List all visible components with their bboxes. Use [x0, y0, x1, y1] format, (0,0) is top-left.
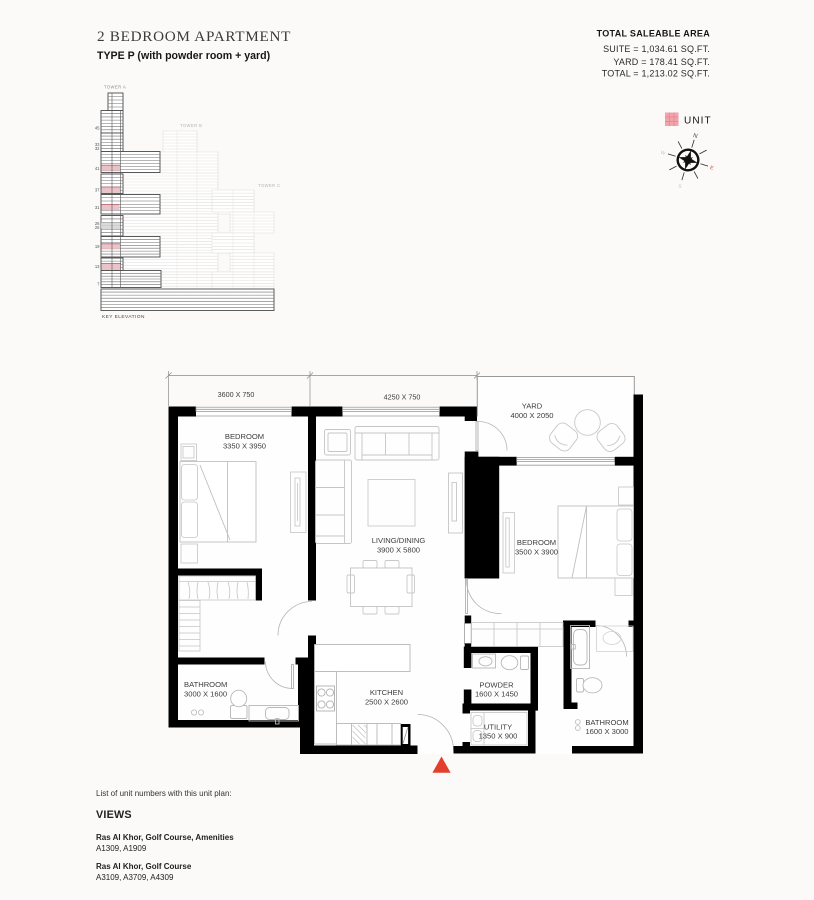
- svg-text:BATHROOM: BATHROOM: [184, 680, 227, 689]
- svg-text:31: 31: [95, 205, 100, 210]
- svg-text:TOWER A: TOWER A: [104, 85, 126, 90]
- svg-text:45: 45: [95, 126, 100, 131]
- svg-text:KITCHEN: KITCHEN: [370, 688, 403, 697]
- svg-text:1350 X 900: 1350 X 900: [479, 732, 518, 741]
- svg-text:BEDROOM: BEDROOM: [517, 538, 556, 547]
- svg-text:41: 41: [95, 166, 100, 171]
- svg-text:19: 19: [95, 244, 100, 249]
- svg-text:UTILITY: UTILITY: [484, 723, 512, 732]
- svg-text:TYPE P (with powder room + yar: TYPE P (with powder room + yard): [97, 50, 270, 62]
- svg-text:3900 X 5800: 3900 X 5800: [377, 546, 420, 555]
- svg-text:1600 X 1450: 1600 X 1450: [475, 690, 518, 699]
- svg-text:25: 25: [95, 225, 100, 230]
- svg-text:UNIT: UNIT: [684, 116, 712, 127]
- svg-text:TOTAL SALEABLE AREA: TOTAL SALEABLE AREA: [597, 29, 711, 39]
- svg-text:LIVING/DINING: LIVING/DINING: [372, 536, 426, 545]
- svg-text:13: 13: [95, 264, 100, 269]
- svg-text:4000 X 2050: 4000 X 2050: [510, 411, 553, 420]
- svg-text:List of unit numbers with this: List of unit numbers with this unit plan…: [96, 789, 232, 798]
- svg-text:4250 X 750: 4250 X 750: [384, 393, 421, 402]
- svg-text:KEY ELEVATION: KEY ELEVATION: [102, 314, 145, 320]
- svg-text:3500 X 3900: 3500 X 3900: [515, 548, 558, 557]
- svg-text:VIEWS: VIEWS: [96, 809, 132, 821]
- svg-text:A1309, A1909: A1309, A1909: [96, 844, 147, 853]
- svg-text:TOWER C: TOWER C: [258, 183, 281, 188]
- svg-text:1600 X 3000: 1600 X 3000: [585, 727, 628, 736]
- svg-text:32: 32: [95, 146, 100, 151]
- svg-text:BATHROOM: BATHROOM: [585, 718, 628, 727]
- svg-text:2 BEDROOM APARTMENT: 2 BEDROOM APARTMENT: [97, 28, 291, 45]
- svg-text:37: 37: [95, 187, 100, 192]
- svg-text:Ras Al Khor, Golf Course: Ras Al Khor, Golf Course: [96, 862, 192, 871]
- svg-text:3000 X 1600: 3000 X 1600: [184, 690, 227, 699]
- svg-text:POWDER: POWDER: [479, 681, 514, 690]
- svg-text:A3109, A3709, A4309: A3109, A3709, A4309: [96, 873, 174, 882]
- svg-text:Ras Al Khor, Golf Course, Amen: Ras Al Khor, Golf Course, Amenities: [96, 833, 234, 842]
- svg-text:SUITE = 1,034.61 SQ.FT.: SUITE = 1,034.61 SQ.FT.: [603, 44, 710, 54]
- svg-text:TOTAL = 1,213.02 SQ.FT.: TOTAL = 1,213.02 SQ.FT.: [602, 69, 710, 79]
- svg-text:YARD: YARD: [522, 402, 543, 411]
- svg-text:YARD = 178.41 SQ.FT.: YARD = 178.41 SQ.FT.: [613, 57, 710, 67]
- svg-text:2500 X 2600: 2500 X 2600: [365, 698, 408, 707]
- svg-text:3350 X 3950: 3350 X 3950: [223, 442, 266, 451]
- svg-text:TOWER B: TOWER B: [180, 123, 202, 128]
- svg-text:3600 X 750: 3600 X 750: [218, 390, 255, 399]
- svg-text:BEDROOM: BEDROOM: [225, 432, 264, 441]
